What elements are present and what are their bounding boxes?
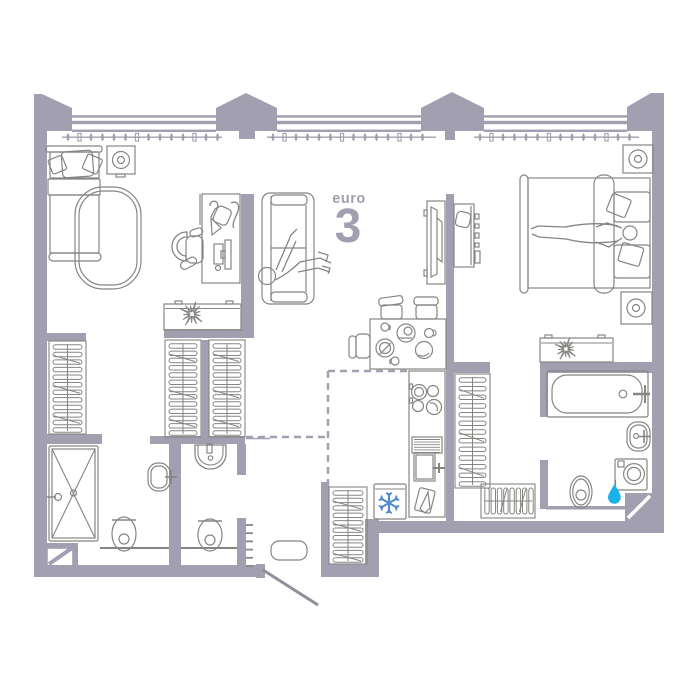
- svg-text:3: 3: [335, 200, 362, 253]
